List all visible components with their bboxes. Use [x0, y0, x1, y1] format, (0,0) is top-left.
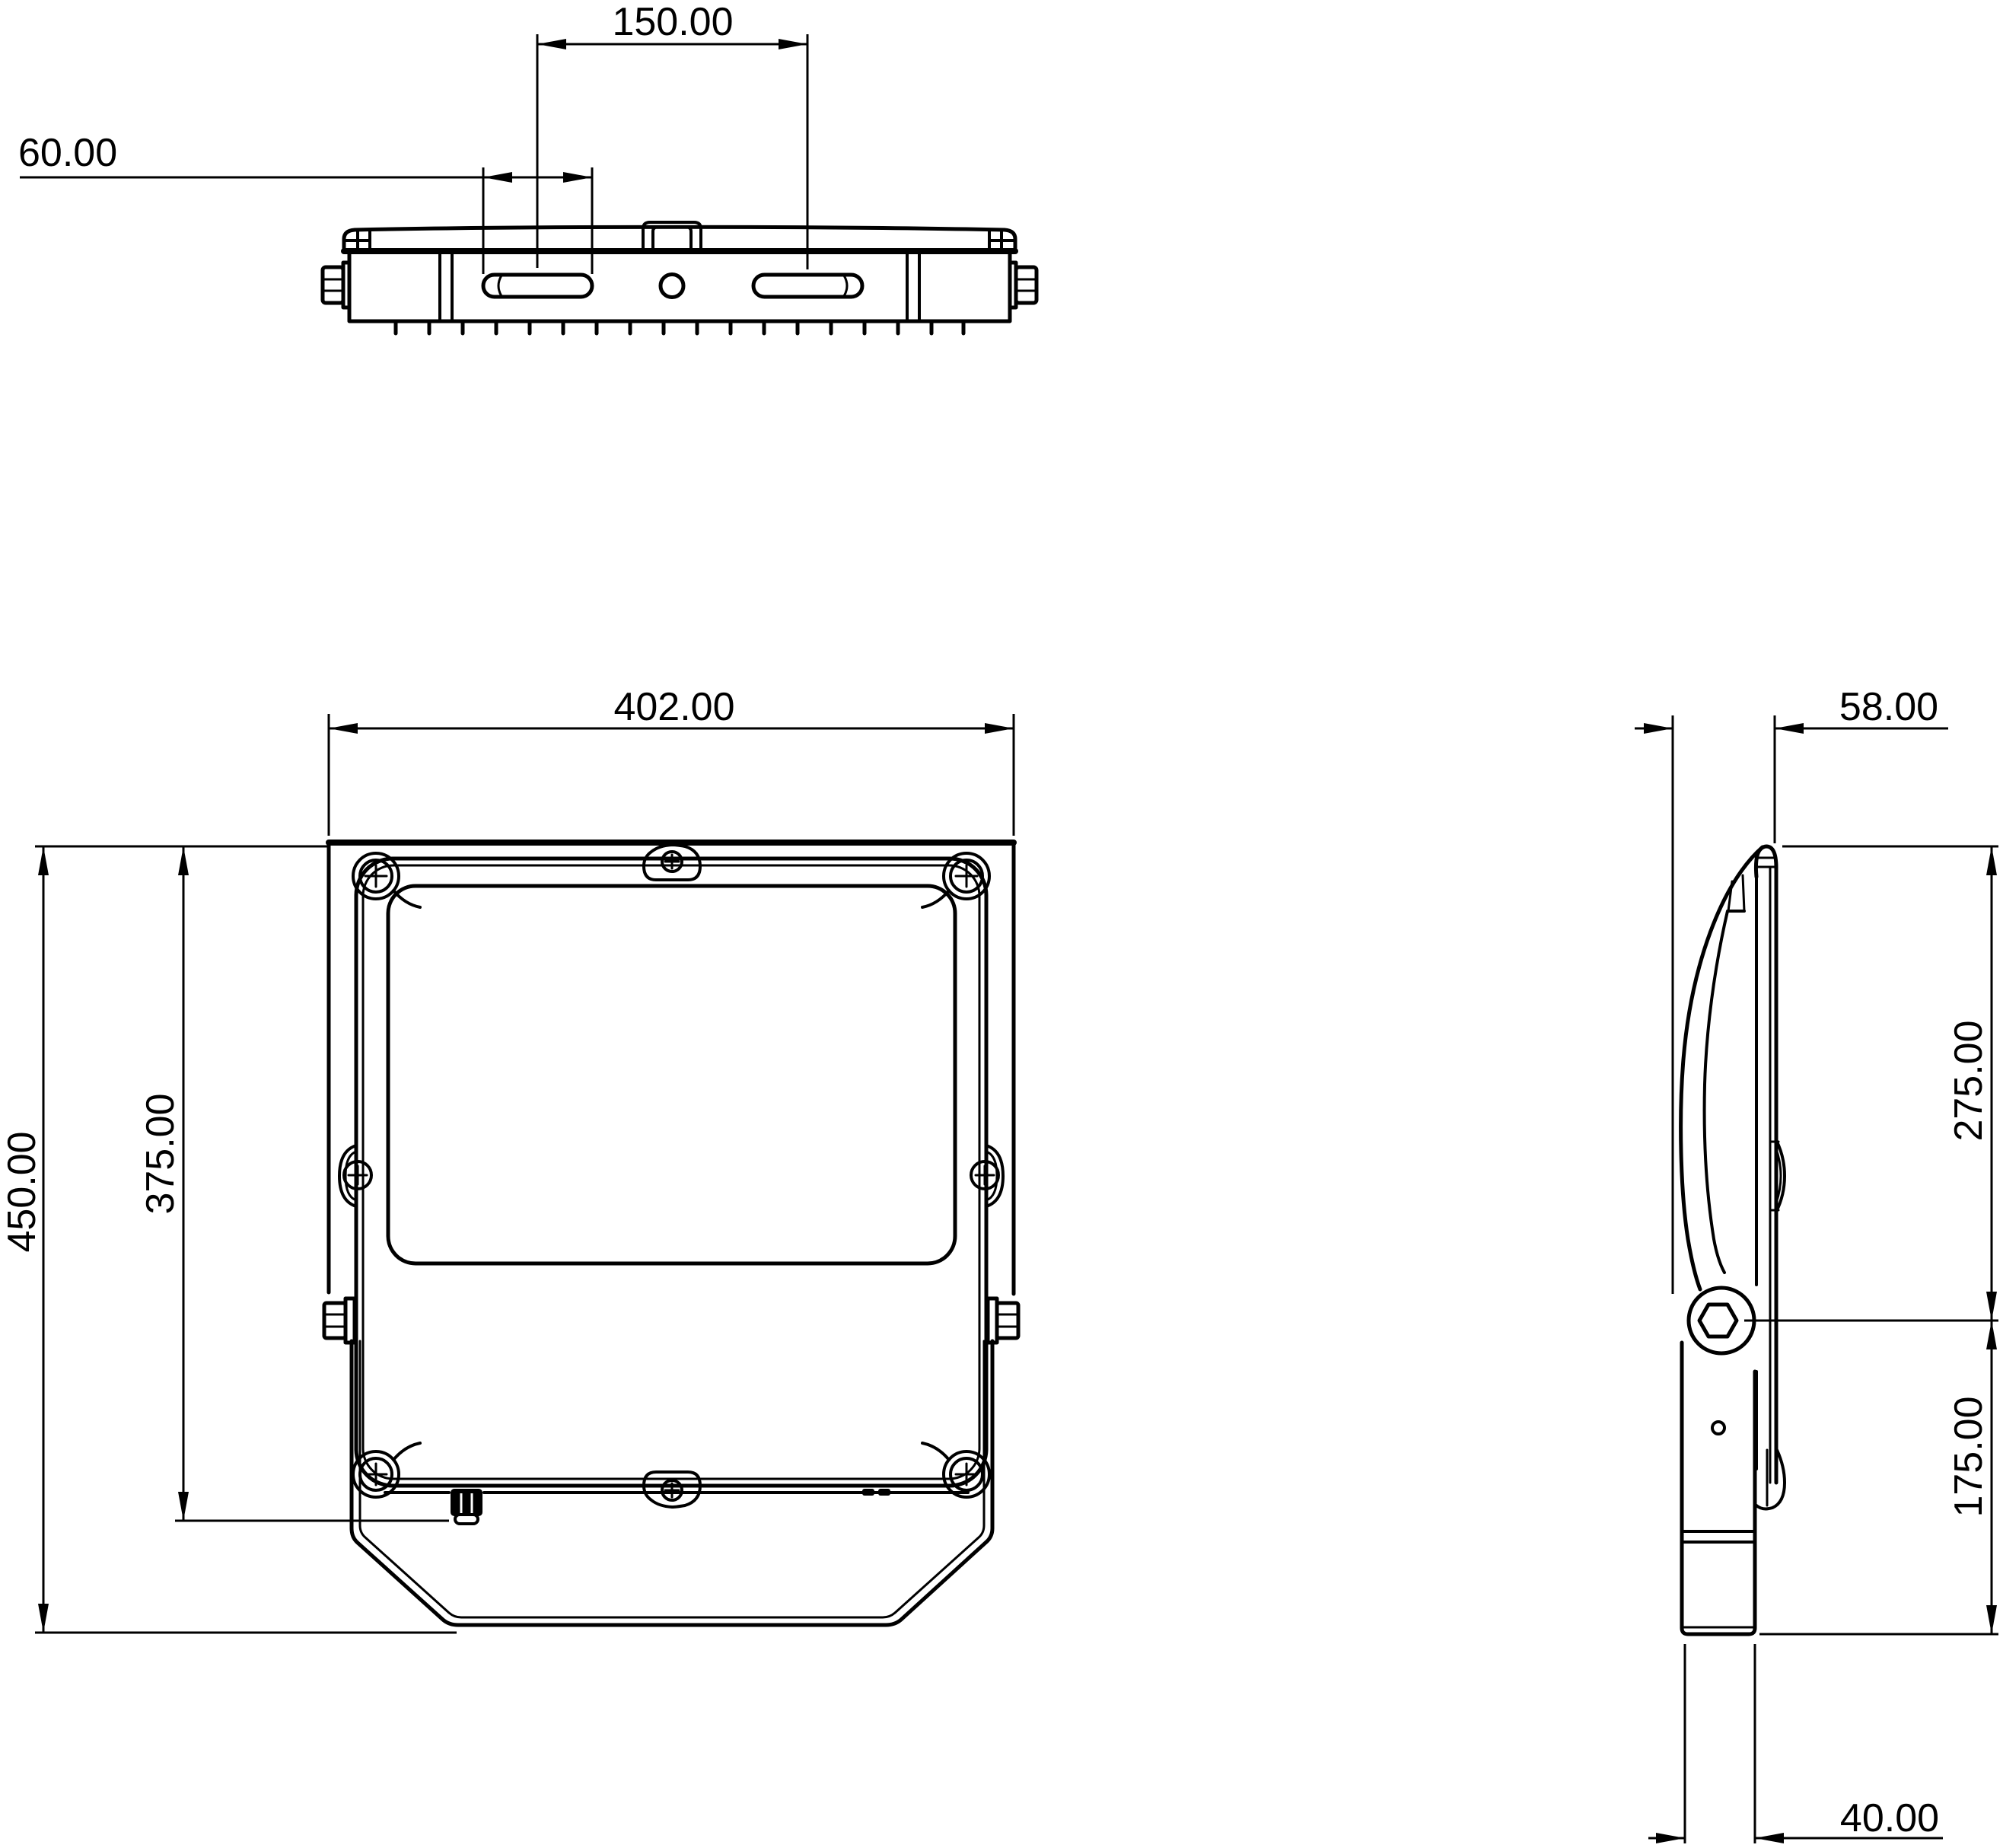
top-body — [349, 251, 1010, 321]
mounting-slot-right-detail — [844, 276, 847, 296]
arrowhead — [329, 723, 358, 734]
dimension-depth: 58.00 — [1635, 685, 1948, 1294]
gland-cap — [455, 1515, 478, 1524]
bolt-head-facets — [323, 279, 343, 291]
bracket-outline — [1682, 1343, 1755, 1634]
lens-window — [388, 886, 955, 1263]
arrowhead — [1986, 1321, 1997, 1349]
arrowhead — [483, 172, 512, 183]
back-inner-curve — [1705, 911, 1744, 1273]
cable-gland — [451, 1489, 482, 1524]
dim-label-mounting-height: 375.00 — [139, 1093, 183, 1214]
dim-label-slot-spacing: 150.00 — [612, 0, 733, 44]
bezel-outer — [356, 859, 986, 1486]
arrowhead — [178, 1492, 189, 1521]
bracket-step-lines — [1683, 1531, 1753, 1542]
arrowhead — [38, 1604, 49, 1633]
bolt-head-facets — [997, 1314, 1018, 1327]
dim-label-foot-width: 40.00 — [1840, 1796, 1939, 1840]
dim-label-upper-height: 275.00 — [1947, 1020, 1991, 1141]
extension-lines — [329, 714, 1014, 836]
arrowhead — [1986, 846, 1997, 875]
extension-lines — [1685, 1644, 1755, 1843]
dim-label-depth: 58.00 — [1839, 685, 1938, 729]
arrowhead — [38, 846, 49, 875]
pivot-bolt-left — [324, 1298, 355, 1343]
housing-side-edges — [329, 843, 1014, 1294]
dimension-mounting-height: 375.00 — [139, 846, 449, 1521]
bolt-washer — [343, 263, 349, 307]
arrowhead — [1986, 1605, 1997, 1634]
arrowhead — [1644, 723, 1673, 734]
top-cap — [1756, 846, 1776, 877]
pocket-tail — [922, 1443, 949, 1460]
drawing-sheet: 150.00 60.00 — [0, 0, 2003, 1848]
dim-label-overall-height: 450.00 — [0, 1131, 44, 1252]
dimension-width: 402.00 — [329, 685, 1014, 836]
pivot-bolt-right — [988, 1298, 1018, 1343]
top-cover-outline — [344, 227, 1015, 250]
mounting-slot-left-detail — [498, 276, 502, 296]
dim-label-lower-height: 175.00 — [1947, 1396, 1991, 1517]
bolt-head-facets — [324, 1314, 346, 1327]
back-profile-curve — [1681, 847, 1763, 1289]
top-cap-ticks — [1756, 858, 1776, 867]
bolt-head-icon — [1016, 267, 1037, 303]
heatsink-fins — [396, 323, 963, 333]
extension-lines — [35, 846, 457, 1633]
bracket-hole — [1712, 1422, 1724, 1434]
extension-lines — [1673, 715, 1775, 1294]
center-hole — [661, 275, 683, 298]
pocket-tail — [922, 891, 949, 907]
arrowhead — [178, 846, 189, 875]
front-view — [324, 843, 1018, 1625]
dimension-foot-width: 40.00 — [1648, 1644, 1943, 1843]
bolt-left — [323, 263, 349, 307]
terminal-mark — [862, 1489, 874, 1496]
top-view — [323, 222, 1037, 333]
bolt-washer — [1010, 263, 1016, 307]
arrowhead — [779, 39, 807, 49]
pocket-tail — [393, 891, 420, 907]
top-cover-end-details — [344, 231, 1015, 250]
dimension-lower-height: 175.00 — [1759, 1321, 1998, 1634]
bezel-inner — [363, 865, 979, 1479]
arrowhead — [985, 723, 1014, 734]
arrowhead — [563, 172, 592, 183]
pocket-tail — [393, 1443, 420, 1460]
dim-label-width: 402.00 — [613, 685, 734, 729]
arrowhead — [1986, 1292, 1997, 1321]
gland-body — [451, 1489, 482, 1516]
bolt-head-icon — [323, 267, 343, 303]
arrowhead — [1755, 1833, 1784, 1843]
bolt-head-icon — [997, 1303, 1018, 1338]
bolt-right — [1010, 263, 1037, 307]
bottom-center-screw-tab — [644, 1472, 700, 1507]
arrowhead — [1775, 723, 1804, 734]
hinge-hex-bolt-icon — [1699, 1305, 1737, 1337]
top-center-screw-tab — [644, 845, 700, 880]
bolt-head-facets — [1016, 279, 1037, 291]
floodlight-technical-drawing: 150.00 60.00 — [0, 0, 2003, 1848]
bolt-head-icon — [324, 1303, 346, 1338]
dimension-upper-height: 275.00 — [1744, 846, 1998, 1321]
terminal-mark — [878, 1489, 890, 1496]
extension-lines — [537, 34, 807, 269]
side-view — [1681, 846, 1785, 1634]
dim-label-slot-length: 60.00 — [18, 131, 117, 175]
arrowhead — [1656, 1833, 1685, 1843]
arrowhead — [537, 39, 566, 49]
